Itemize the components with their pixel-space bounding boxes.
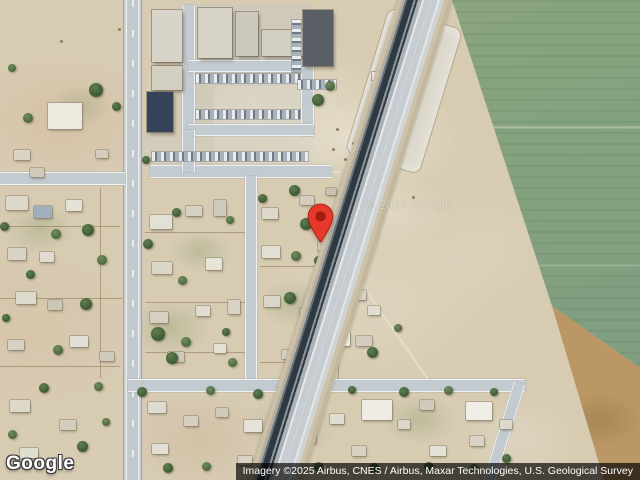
tree xyxy=(151,327,165,341)
tree xyxy=(53,345,63,355)
house-roof xyxy=(362,400,392,420)
house-roof xyxy=(368,306,380,315)
tree xyxy=(51,229,61,239)
house-roof xyxy=(34,206,52,218)
road xyxy=(123,0,142,480)
ground-debris xyxy=(344,158,347,161)
road xyxy=(245,176,257,388)
house-roof xyxy=(184,416,198,426)
google-watermark: © 2025 Google xyxy=(366,198,452,212)
building-roof xyxy=(236,12,258,56)
house-roof xyxy=(214,344,226,353)
tree xyxy=(258,194,267,203)
tree xyxy=(253,389,263,399)
house-roof xyxy=(40,252,54,262)
house-roof xyxy=(466,402,492,420)
tree xyxy=(399,387,409,397)
parking-row xyxy=(196,74,300,83)
house-roof xyxy=(6,196,28,210)
tree xyxy=(172,208,181,217)
house-roof xyxy=(420,400,434,410)
house-roof xyxy=(70,336,88,347)
house-roof xyxy=(10,400,30,412)
house-roof xyxy=(150,215,172,229)
house-roof xyxy=(148,402,166,413)
house-roof xyxy=(60,420,76,430)
house-roof xyxy=(398,420,410,429)
parking-row xyxy=(196,110,300,119)
tree xyxy=(143,239,153,249)
tree xyxy=(444,386,453,395)
tree xyxy=(77,441,88,452)
tree xyxy=(291,251,301,261)
parcel-fence-line xyxy=(145,352,245,353)
ground-debris xyxy=(118,28,121,31)
tree xyxy=(26,270,35,279)
tree xyxy=(325,81,335,91)
parking-row xyxy=(292,20,301,72)
house-roof xyxy=(196,306,210,316)
house-roof xyxy=(150,312,168,323)
building-roof xyxy=(152,66,182,90)
tree xyxy=(163,463,173,473)
tree xyxy=(142,156,150,164)
tree xyxy=(394,324,402,332)
ground-debris xyxy=(332,148,335,151)
road xyxy=(188,124,314,136)
tree xyxy=(97,255,107,265)
tree xyxy=(102,418,110,426)
house-roof xyxy=(500,420,512,429)
parcel-fence-line xyxy=(0,226,120,227)
building-roof xyxy=(147,92,173,132)
parcel-fence-line xyxy=(100,188,101,378)
tree xyxy=(348,386,356,394)
house-roof xyxy=(244,420,262,432)
house-roof xyxy=(262,246,280,258)
house-roof xyxy=(206,258,222,270)
tree xyxy=(181,337,191,347)
tree xyxy=(0,222,9,231)
building-roof xyxy=(198,8,232,58)
satellite-map[interactable]: © 2025 Google Google Imagery ©2025 Airbu… xyxy=(0,0,640,480)
house-roof xyxy=(48,300,62,310)
house-roof xyxy=(186,206,202,216)
house-roof xyxy=(430,446,446,456)
house-roof xyxy=(330,414,344,424)
tree xyxy=(80,298,92,310)
parcel-fence-line xyxy=(0,366,120,367)
house-roof xyxy=(216,408,228,417)
tree xyxy=(367,347,378,358)
tree xyxy=(112,102,121,111)
house-roof xyxy=(100,352,114,361)
house-roof xyxy=(326,188,336,195)
house-roof xyxy=(356,336,372,346)
tree xyxy=(222,328,230,336)
building-roof xyxy=(152,10,182,62)
house-roof xyxy=(16,292,36,304)
house-roof xyxy=(262,208,278,219)
parking-row xyxy=(152,152,308,161)
location-pin-inner-circle xyxy=(315,211,325,221)
tree xyxy=(312,94,324,106)
tree xyxy=(202,462,211,471)
house-roof xyxy=(352,446,366,456)
location-pin-body xyxy=(308,204,333,242)
tree xyxy=(178,276,187,285)
house-roof xyxy=(14,150,30,160)
tree xyxy=(166,352,178,364)
road xyxy=(0,172,125,185)
house-roof xyxy=(96,150,108,158)
tree xyxy=(226,216,234,224)
ground-debris xyxy=(60,40,63,43)
tree xyxy=(8,430,17,439)
tree xyxy=(284,292,296,304)
house-roof xyxy=(8,340,24,350)
parcel-fence-line xyxy=(145,232,245,233)
building-roof xyxy=(303,10,333,66)
house-roof xyxy=(30,168,44,177)
tree xyxy=(137,387,147,397)
house-roof xyxy=(214,200,226,216)
tree xyxy=(502,454,511,463)
google-logo[interactable]: Google xyxy=(6,453,74,475)
tree xyxy=(89,83,103,97)
house-roof xyxy=(470,436,484,446)
imagery-attribution: Imagery ©2025 Airbus, CNES / Airbus, Max… xyxy=(236,463,640,480)
house-roof xyxy=(152,262,172,274)
tree xyxy=(94,382,103,391)
house-roof xyxy=(152,444,168,454)
house-roof xyxy=(66,200,82,211)
tree xyxy=(2,314,10,322)
house-roof xyxy=(8,248,26,260)
location-pin[interactable] xyxy=(307,203,334,243)
tree xyxy=(8,64,16,72)
road xyxy=(182,130,195,172)
tree xyxy=(82,224,94,236)
tree xyxy=(39,383,49,393)
road xyxy=(150,165,332,178)
tree xyxy=(206,386,215,395)
tree xyxy=(289,185,300,196)
house-roof xyxy=(48,103,82,129)
ground-debris xyxy=(336,128,339,131)
tree xyxy=(228,358,237,367)
house-roof xyxy=(228,300,240,314)
tree xyxy=(23,113,33,123)
tree xyxy=(490,388,498,396)
house-roof xyxy=(264,296,280,307)
